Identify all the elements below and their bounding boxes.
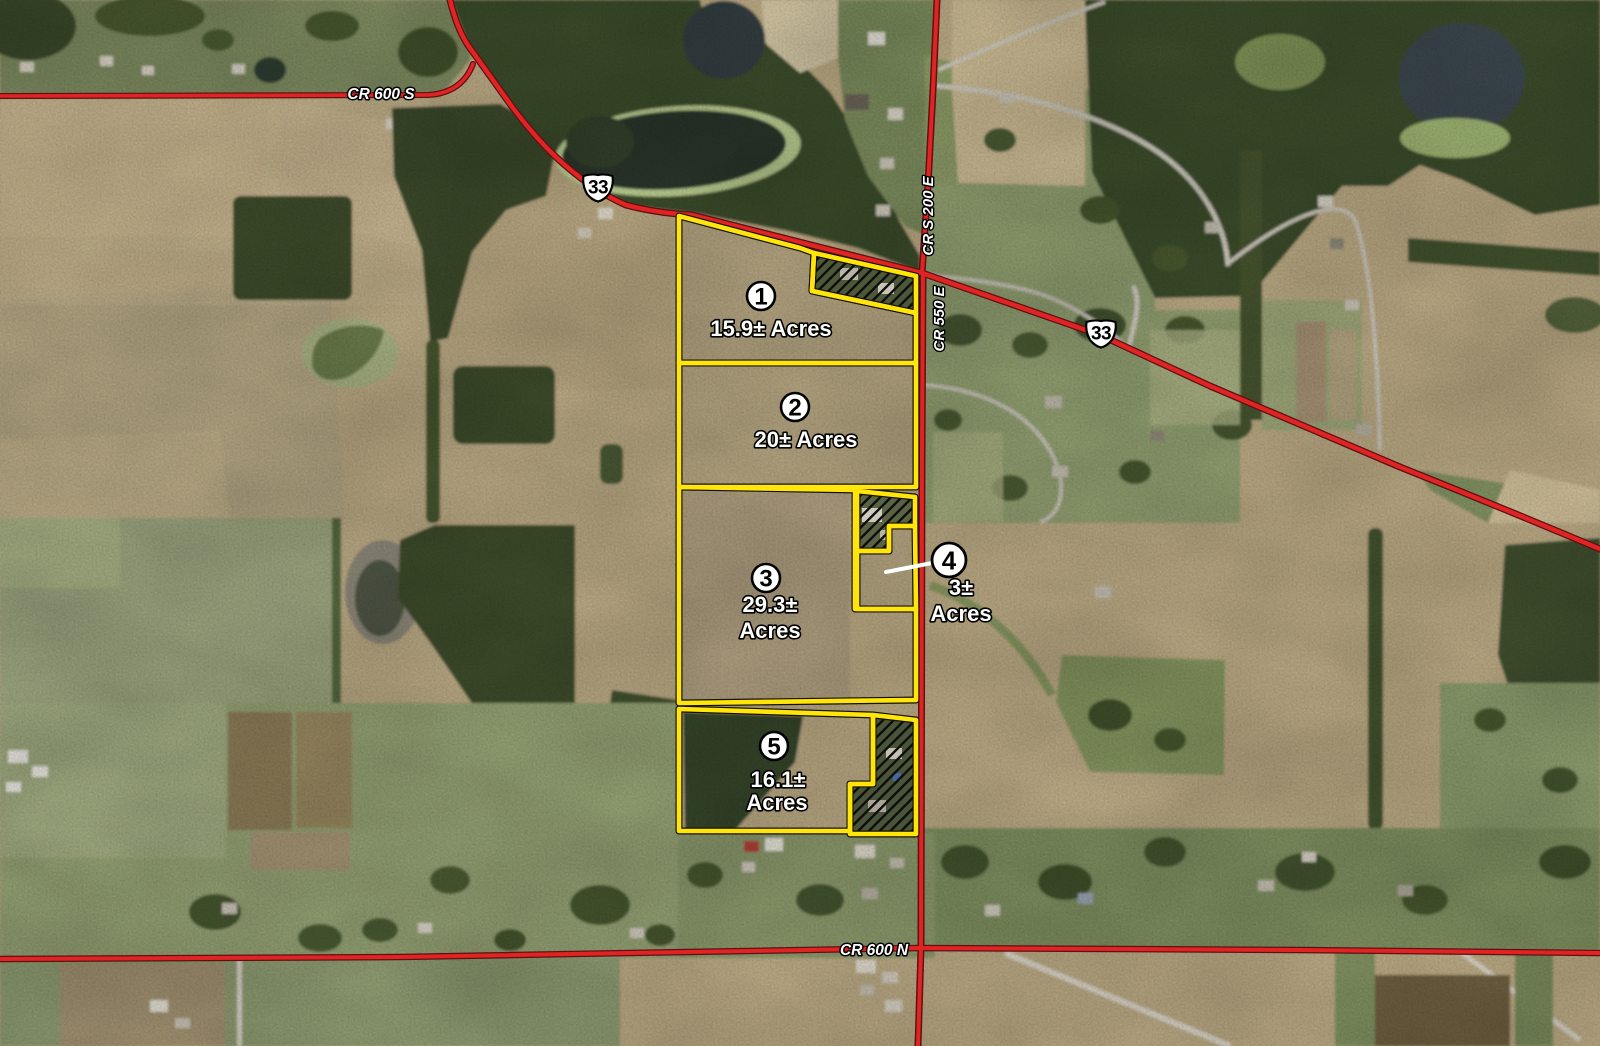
- svg-text:CR S 200 E: CR S 200 E: [920, 175, 937, 255]
- svg-text:20± Acres: 20± Acres: [755, 427, 858, 452]
- svg-text:CR 600 S: CR 600 S: [347, 86, 415, 103]
- svg-text:33: 33: [588, 178, 608, 199]
- svg-text:15.9± Acres: 15.9± Acres: [710, 316, 831, 341]
- svg-text:16.1±: 16.1±: [751, 767, 806, 792]
- svg-text:4: 4: [942, 546, 957, 576]
- svg-text:Acres: Acres: [739, 618, 800, 643]
- svg-text:3: 3: [759, 566, 772, 593]
- svg-text:CR 550 E: CR 550 E: [931, 285, 948, 351]
- svg-text:1: 1: [754, 284, 767, 311]
- svg-text:33: 33: [1091, 324, 1111, 345]
- svg-text:2: 2: [788, 395, 801, 422]
- svg-text:Acres: Acres: [746, 790, 807, 815]
- svg-text:29.3±: 29.3±: [743, 592, 798, 617]
- svg-text:3±: 3±: [949, 575, 973, 600]
- svg-text:CR 600 N: CR 600 N: [840, 942, 909, 959]
- svg-text:Acres: Acres: [930, 601, 991, 626]
- svg-text:5: 5: [767, 734, 780, 761]
